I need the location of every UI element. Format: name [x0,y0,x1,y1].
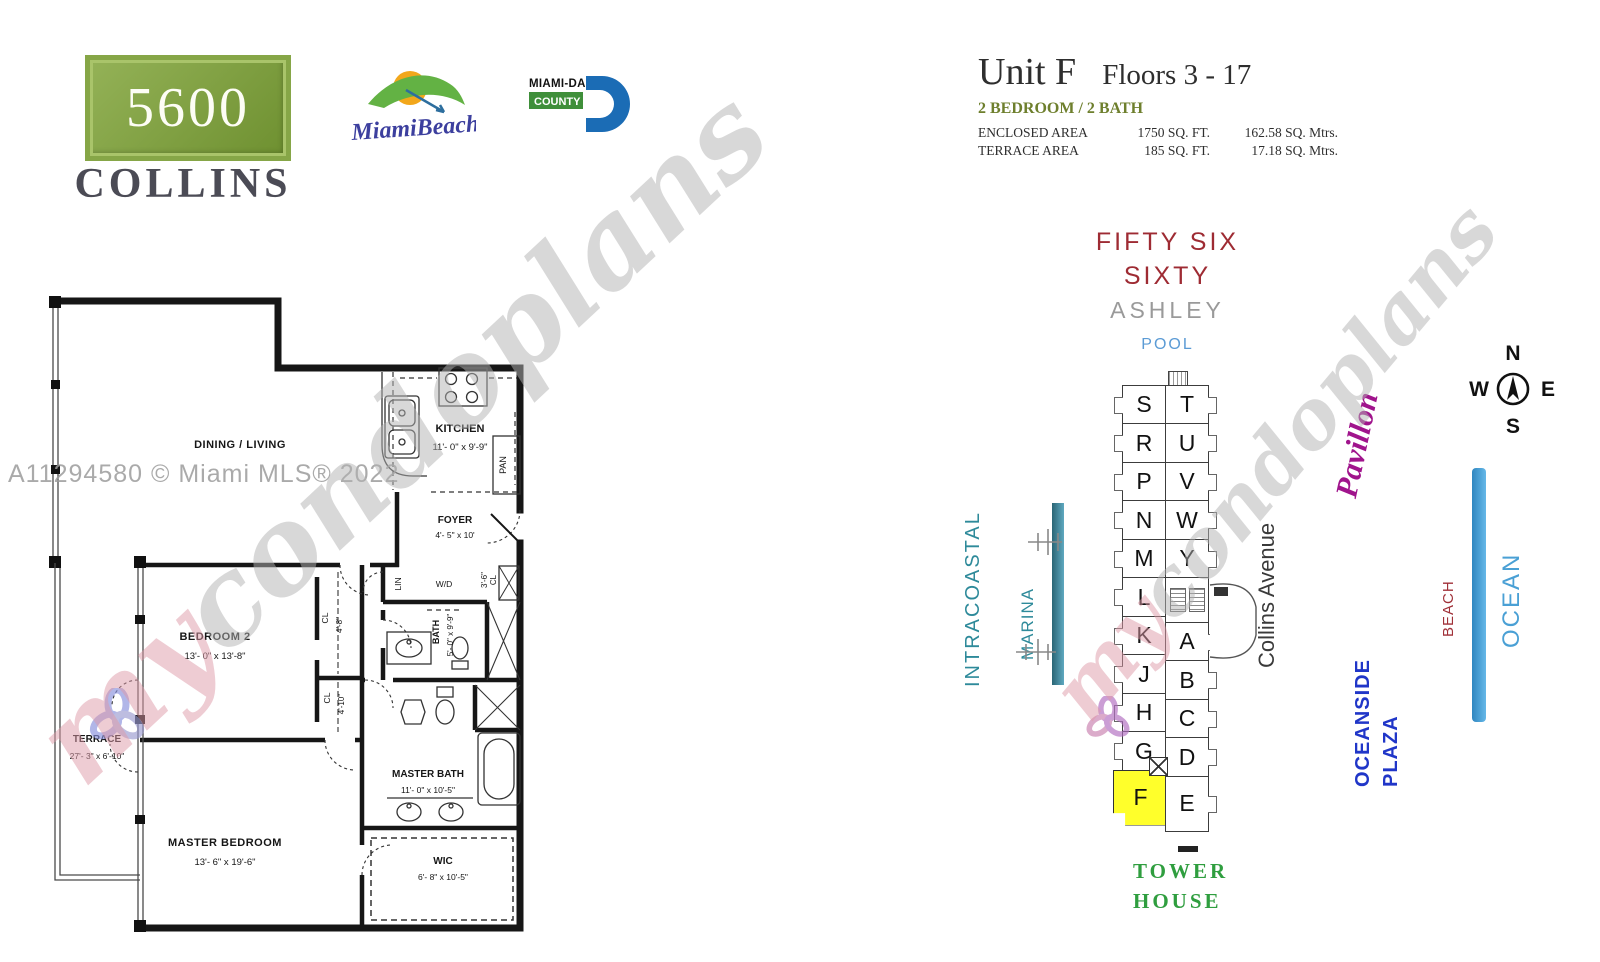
highlighted-unit-cell: F [1113,770,1168,826]
bedroom2-label: BEDROOM 2 [179,631,250,643]
unit-cell: S [1122,385,1166,425]
bedroom2-dims: 13'- 0" x 13'-8" [184,651,245,662]
neighbor-tower-house: TOWER HOUSE [1133,856,1228,916]
kitchen-label: KITCHEN [436,423,485,435]
bath-dims: 5'- 0" x 9'-9" [446,614,455,657]
unit-cell: C [1165,699,1209,739]
dade-d-icon [586,76,630,132]
miami-beach-logo: MiamiBeach [348,58,476,154]
neighbor-pavillon: Pavillon [1324,368,1390,522]
tower-core [1165,577,1209,623]
beach-label: BEACH [1440,552,1457,637]
dining-living-label: DINING / LIVING [194,439,286,451]
floorplan-sheet: 5600 COLLINS MiamiBeach MIAMI-DADE COUNT… [0,0,1600,962]
closet1-label: CL [320,612,330,623]
ocean-label: OCEAN [1498,533,1526,648]
foyer-label: FOYER [438,515,473,526]
compass-east: E [1541,378,1555,401]
tower-house-line2: HOUSE [1133,886,1228,916]
lin-label: LIN [393,577,403,590]
county-text: COUNTY [534,96,581,108]
stairs-icon [1170,588,1186,612]
compass-icon: N W E S [1468,340,1558,436]
neighbor-fifty-six-sixty: FIFTY SIX [1090,228,1245,257]
unit-cell: P [1122,462,1166,502]
trillium-watermark-icon [1085,696,1131,742]
master-bath-label: MASTER BATH [392,769,464,780]
intracoastal-label: INTRACOASTAL [962,505,985,687]
unit-floors: Floors 3 - 17 [1102,59,1251,92]
miami-beach-logo-text: MiamiBeach [350,111,476,146]
tower-house-line1: TOWER [1133,856,1228,886]
tower-entrance-mark [1178,846,1198,852]
building-number-badge: 5600 [85,55,291,161]
neighbor-sixty: SIXTY [1090,262,1245,291]
unit-title: Unit F [978,50,1076,94]
compass-south: S [1506,415,1520,436]
unit-cell: U [1165,423,1209,463]
tower-east-column: T U V W Y A B C D E [1165,386,1209,832]
closet1-dims: 4'-8" [335,617,344,633]
area-sqft: 185 SQ. FT. [1106,143,1210,159]
stairs-icon [1189,588,1205,612]
terrace-dims: 27'- 3" x 6'-10" [70,751,125,761]
neighbor-oceanside: OCEANSIDE [1352,645,1375,787]
master-bedroom-dims: 13'- 6" x 19'-6" [194,857,255,868]
area-metric: 17.18 SQ. Mtrs. [1210,143,1338,159]
neighbor-ashley: ASHLEY [1090,297,1245,324]
elevator-icon [1149,757,1168,776]
unit-cell: D [1165,737,1209,777]
unit-cell: N [1122,500,1166,540]
pool-label: POOL [1090,336,1245,354]
wall-stubs [49,296,146,932]
unit-cell: R [1122,423,1166,463]
wic-label: WIC [433,856,452,867]
unit-cell: B [1165,660,1209,700]
foyer-dims: 4'- 5" x 10' [435,530,475,540]
unit-cell: T [1165,385,1209,425]
street-collins-avenue: Collins Avenue [1254,498,1280,668]
unit-cell: M [1122,539,1166,579]
area-label: TERRACE AREA [978,143,1106,159]
bath-label: BATH [431,620,441,644]
unit-info-panel: Unit F Floors 3 - 17 2 BEDROOM / 2 BATH … [978,50,1308,159]
kitchen-dims: 11'- 0" x 9'-9" [432,442,487,453]
unit-cell: A [1165,622,1209,662]
area-table: ENCLOSED AREA 1750 SQ. FT. 162.58 SQ. Mt… [978,125,1308,159]
neighbor-plaza: PLAZA [1380,707,1403,787]
unit-cell: E [1165,776,1209,832]
floor-plan: DINING / LIVING KITCHEN 11'- 0" x 9'-9" … [35,280,545,935]
master-bedroom-label: MASTER BEDROOM [168,837,282,849]
pan-label: PAN [498,456,508,474]
unit-configuration: 2 BEDROOM / 2 BATH [978,100,1308,118]
area-label: ENCLOSED AREA [978,125,1106,141]
ocean-shore [1472,468,1486,722]
closet2-dims: 4'-10" [337,694,346,715]
area-metric: 162.58 SQ. Mtrs. [1210,125,1338,141]
master-bath-fixtures [387,685,520,821]
master-bath-dims: 11'- 0" x 10'-5" [401,785,455,795]
dock-icons [998,512,1068,677]
closet3-dims: 3'-6" [480,572,489,588]
trillium-watermark-icon [88,688,146,746]
window-walls [53,301,143,928]
compass-north: N [1505,342,1520,365]
unit-cell: K [1122,616,1166,656]
closet3-label: CL [489,574,498,585]
unit-cell: V [1165,462,1209,502]
unit-cell: W [1165,500,1209,540]
unit-cell: L [1122,577,1166,617]
wic-dims: 6'- 8" x 10'-5" [418,872,468,882]
area-sqft: 1750 SQ. FT. [1106,125,1210,141]
closet2-label: CL [322,692,332,703]
unit-cell: J [1122,654,1166,694]
wd-label: W/D [436,579,453,589]
miami-dade-logo: MIAMI-DADE COUNTY [528,74,630,136]
entry-door-leaf [491,514,520,543]
building-name: COLLINS [62,160,304,208]
compass-west: W [1469,378,1489,401]
unit-cell: Y [1165,539,1209,579]
building-number: 5600 [126,76,250,140]
